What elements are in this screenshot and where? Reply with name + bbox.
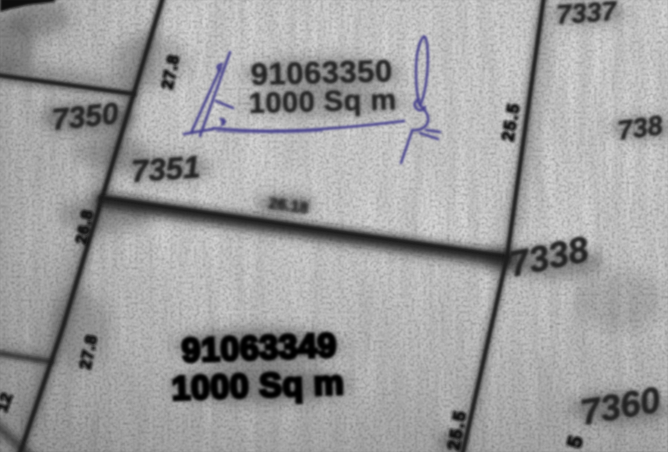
svg-text:738: 738: [616, 110, 665, 146]
svg-text:91063349: 91063349: [181, 327, 338, 370]
svg-text:7350: 7350: [50, 97, 120, 137]
svg-text:7337: 7337: [555, 0, 619, 30]
svg-text:1000 Sq m: 1000 Sq m: [171, 364, 345, 408]
svg-text:7351: 7351: [130, 149, 201, 189]
svg-text:1000 Sq m: 1000 Sq m: [248, 84, 397, 120]
